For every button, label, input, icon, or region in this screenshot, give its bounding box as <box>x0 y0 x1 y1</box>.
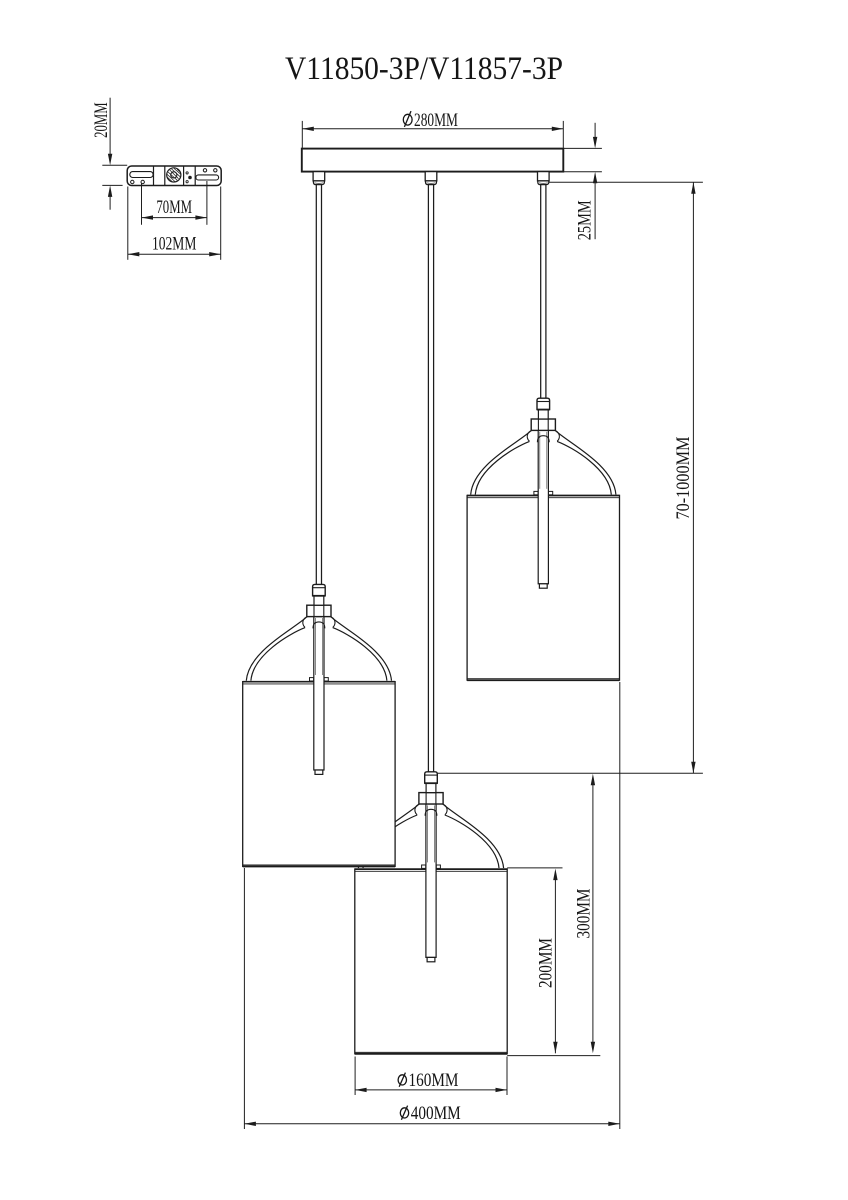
svg-text:300MM: 300MM <box>574 888 595 938</box>
svg-text:V11850-3P/V11857-3P: V11850-3P/V11857-3P <box>285 51 563 87</box>
svg-text:102MM: 102MM <box>152 233 197 254</box>
svg-text:280MM: 280MM <box>414 110 458 131</box>
svg-text:200MM: 200MM <box>536 938 557 988</box>
svg-text:20MM: 20MM <box>91 102 112 138</box>
svg-text:400MM: 400MM <box>411 1103 461 1124</box>
svg-text:25MM: 25MM <box>575 200 596 240</box>
svg-text:70-1000MM: 70-1000MM <box>673 436 694 519</box>
svg-text:70MM: 70MM <box>156 197 192 218</box>
svg-text:160MM: 160MM <box>409 1070 459 1091</box>
